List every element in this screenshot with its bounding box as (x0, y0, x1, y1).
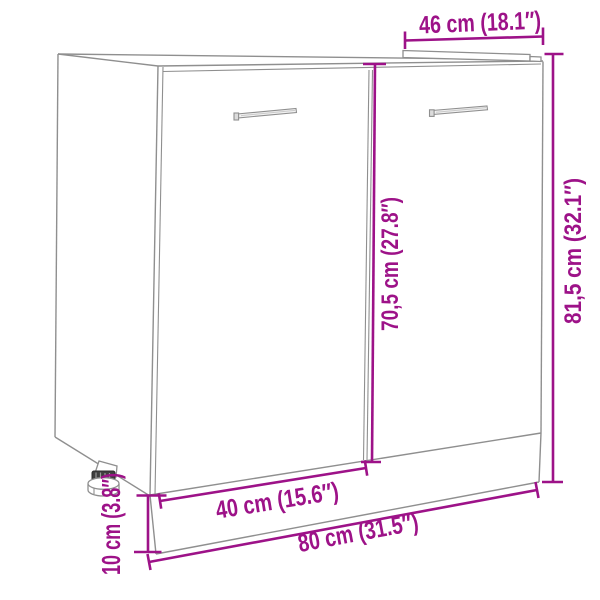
dimension-total-height: 81,5 cm (32.1″) (542, 54, 587, 482)
cabinet-dimension-diagram: 46 cm (18.1″) 81,5 cm (32.1″) 70,5 cm (2… (0, 0, 600, 600)
product-dimension-image: 46 cm (18.1″) 81,5 cm (32.1″) 70,5 cm (2… (0, 0, 600, 600)
left-door-handle-icon (234, 109, 297, 121)
dimension-tick (148, 554, 151, 570)
doors-bottom-edge (150, 433, 541, 495)
back-rail-face (403, 51, 530, 62)
dimension-label-plinth-height: 10 cm (3.8″) (96, 473, 126, 575)
front-right-edge (541, 62, 543, 434)
dimension-annotations: 46 cm (18.1″) 81,5 cm (32.1″) 70,5 cm (2… (96, 7, 587, 575)
right-door-handle-icon (430, 106, 488, 116)
dimension-tick (536, 482, 539, 498)
front-left-outer-edge (150, 66, 158, 495)
cabinet-front (150, 62, 543, 496)
handle-end-cap (234, 113, 239, 120)
dimension-label-door-height: 70,5 cm (27.8″) (377, 197, 404, 331)
handle-end-cap (430, 110, 435, 117)
cabinet-back-rail (403, 51, 541, 62)
dimension-total-width: 80 cm (31.5″) (148, 482, 539, 570)
dimension-label-top-depth: 46 cm (18.1″) (419, 7, 542, 40)
plinth-left-edge (150, 495, 156, 554)
dimension-label-total-height: 81,5 cm (32.1″) (560, 178, 587, 324)
back-rail-end (530, 57, 541, 62)
plinth-right-edge (539, 433, 541, 482)
side-back-edge (55, 54, 58, 437)
dimension-door-width: 40 cm (15.6″) (159, 460, 367, 524)
side-top-edge (58, 54, 158, 66)
dimension-label-door-width: 40 cm (15.6″) (214, 477, 341, 524)
cabinet-side-panel (55, 54, 158, 496)
dimension-line (372, 64, 375, 462)
dimension-top-depth: 46 cm (18.1″) (405, 7, 543, 49)
